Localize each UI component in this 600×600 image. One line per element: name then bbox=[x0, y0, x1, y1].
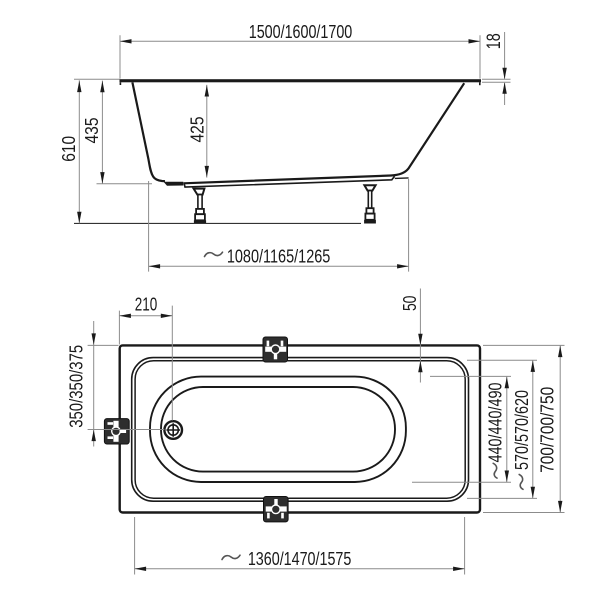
svg-text:1500/1600/1700: 1500/1600/1700 bbox=[249, 21, 353, 42]
svg-text:570/570/620: 570/570/620 bbox=[512, 390, 532, 470]
svg-text:610: 610 bbox=[59, 136, 79, 162]
svg-text:425: 425 bbox=[187, 117, 207, 143]
svg-text:350/350/375: 350/350/375 bbox=[66, 345, 86, 428]
svg-text:435: 435 bbox=[82, 118, 102, 144]
svg-text:700/700/750: 700/700/750 bbox=[537, 387, 557, 473]
svg-text:18: 18 bbox=[484, 33, 505, 49]
svg-text:50: 50 bbox=[400, 296, 420, 312]
svg-text:1360/1470/1575: 1360/1470/1575 bbox=[248, 549, 352, 569]
svg-text:210: 210 bbox=[135, 294, 158, 314]
svg-text:1080/1165/1265: 1080/1165/1265 bbox=[227, 246, 331, 266]
svg-text:440/440/490: 440/440/490 bbox=[486, 383, 506, 463]
